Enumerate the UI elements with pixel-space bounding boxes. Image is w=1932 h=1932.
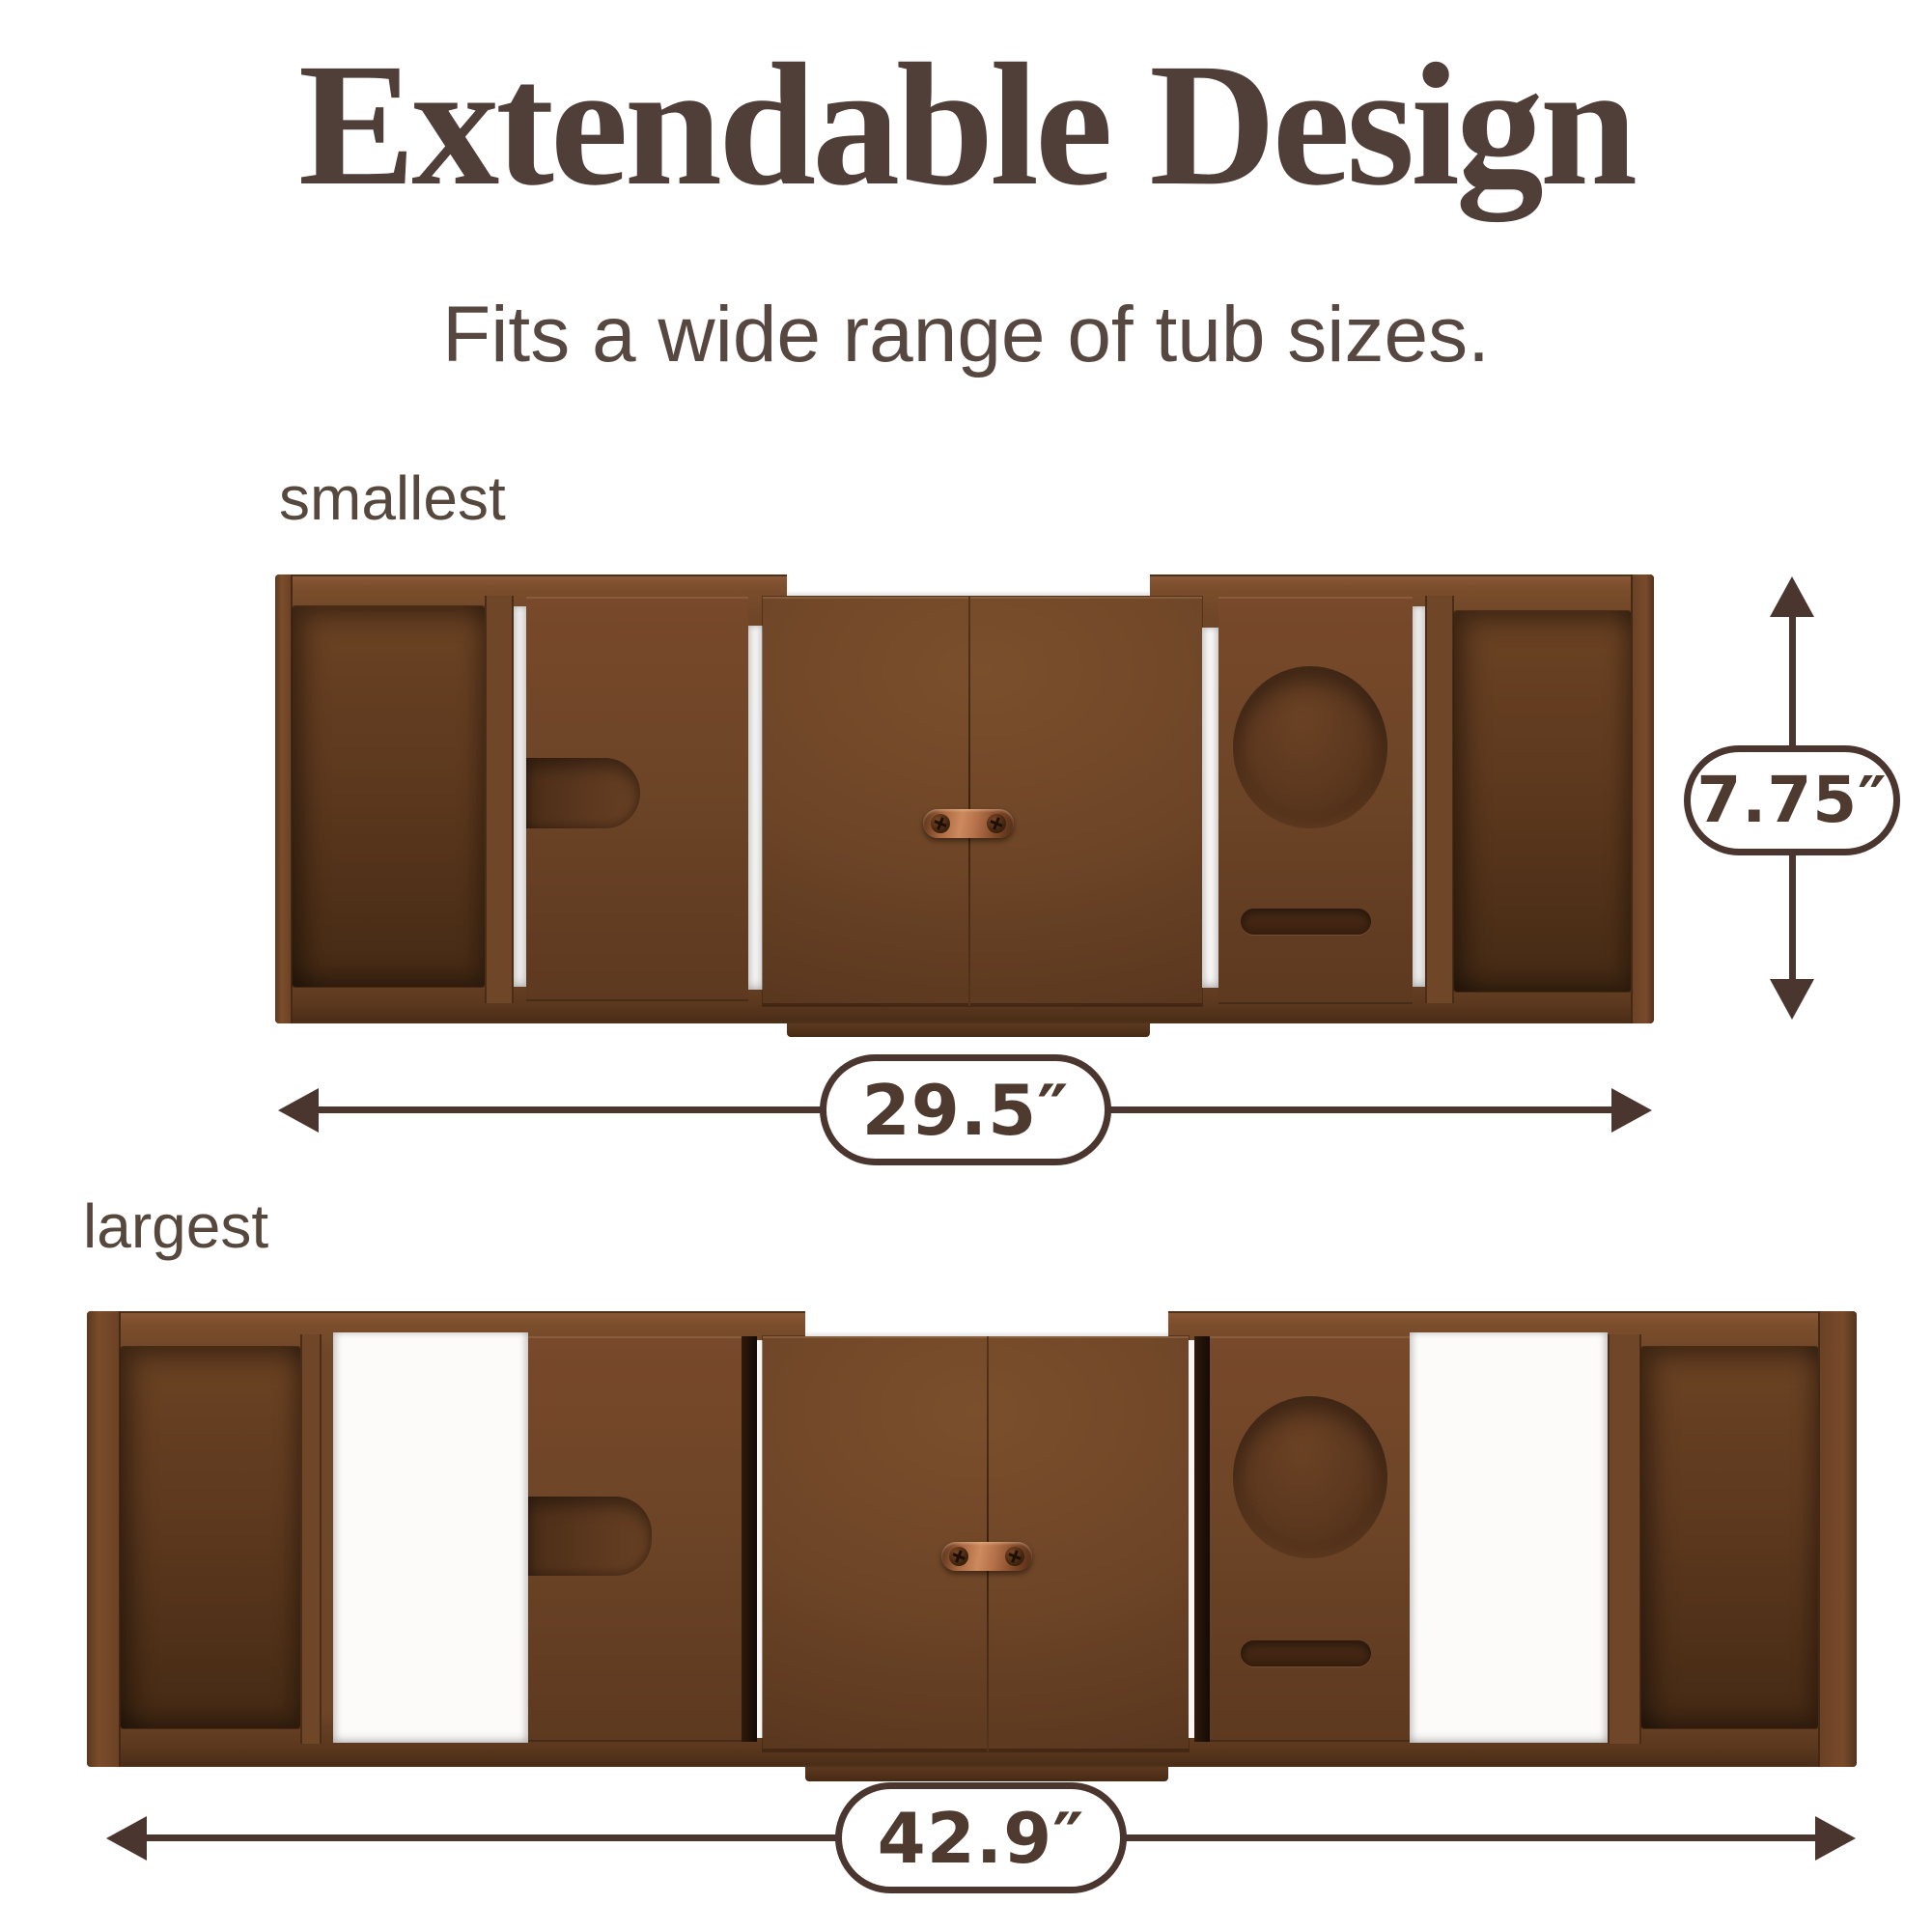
largest-label: largest (83, 1195, 268, 1257)
tray-left-wall (87, 1311, 121, 1767)
handle-screw-right (987, 814, 1006, 833)
tray-right-wall (1631, 574, 1654, 1023)
copper-handle (923, 809, 1014, 838)
page-title: Extendable Design (0, 29, 1932, 222)
left-divider-wall (300, 1334, 322, 1744)
left-storage-compartment (293, 606, 485, 987)
product-infographic: Extendable Design Fits a wide range of t… (0, 0, 1932, 1932)
right-divider-wall (1608, 1334, 1641, 1744)
accessory-slot (1241, 1640, 1371, 1666)
largest-tray-illustration (87, 1311, 1857, 1767)
bottom-center-step (805, 1767, 1168, 1781)
top-center-notch (787, 574, 1150, 596)
height-value: 7.75″ (1696, 769, 1887, 832)
handle-screw-left (949, 1547, 968, 1566)
smallest-width-value: 29.5″ (862, 1076, 1070, 1145)
largest-width-value: 42.9″ (878, 1804, 1085, 1873)
wine-glass-recess (1233, 1396, 1387, 1558)
deck-gap-left (748, 626, 763, 990)
copper-handle (941, 1542, 1032, 1571)
extension-gap-right (1410, 1332, 1608, 1743)
left-storage-compartment (121, 1347, 300, 1728)
right-storage-compartment (1454, 611, 1631, 992)
left-slide-gap (514, 606, 526, 987)
smallest-width-badge: 29.5″ (820, 1054, 1111, 1165)
bottom-center-step (787, 1023, 1150, 1037)
arrow-right-icon (1815, 1816, 1856, 1861)
right-divider-wall (1425, 596, 1454, 1003)
deck-edge-shadow-right (1194, 1336, 1210, 1742)
top-center-notch (805, 1311, 1168, 1336)
handle-screw-left (931, 814, 950, 833)
right-slide-gap (1413, 606, 1425, 987)
extension-gap-left (333, 1332, 528, 1743)
left-divider-wall (485, 596, 514, 1003)
page-subtitle: Fits a wide range of tub sizes. (0, 290, 1932, 380)
smallest-label: smallest (279, 467, 506, 529)
deck-edge-shadow-left (742, 1336, 757, 1742)
height-badge: 7.75″ (1684, 745, 1900, 855)
wine-glass-recess (1233, 666, 1387, 828)
tray-right-wall (1818, 1311, 1857, 1767)
book-slot-notch (526, 758, 640, 828)
largest-width-badge: 42.9″ (835, 1782, 1127, 1893)
right-storage-compartment (1641, 1347, 1818, 1728)
accessory-slot (1241, 909, 1371, 935)
book-slot-notch (528, 1497, 652, 1576)
center-seam (968, 597, 970, 1006)
arrow-right-icon (1611, 1088, 1652, 1133)
handle-screw-right (1005, 1547, 1024, 1566)
arrow-down-icon (1770, 979, 1814, 1020)
center-deck (763, 597, 1202, 1006)
deck-gap-right (1202, 628, 1218, 988)
tray-left-wall (275, 574, 293, 1023)
smallest-tray-illustration (275, 574, 1654, 1023)
